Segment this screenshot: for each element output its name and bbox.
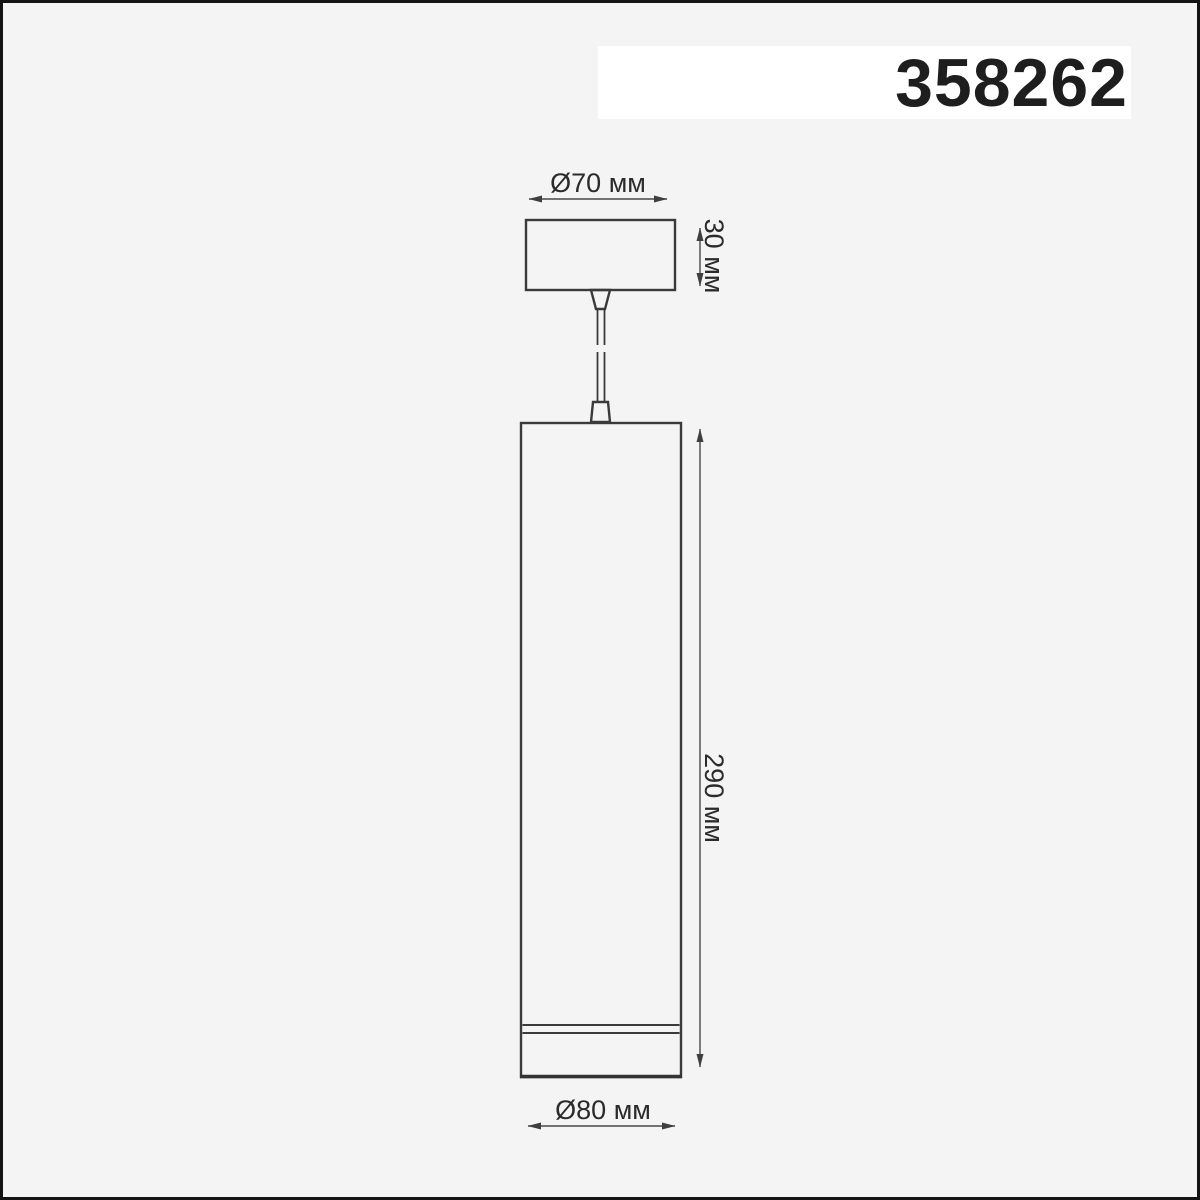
dim-label-canopy-diameter: Ø70 мм	[550, 168, 646, 198]
canopy-outline	[526, 220, 675, 290]
technical-drawing: Ø70 мм 30 мм 290 мм Ø80 мм	[3, 3, 1200, 1200]
dim-label-body-diameter: Ø80 мм	[555, 1095, 651, 1125]
lamp-body-outline	[521, 423, 681, 1077]
suspension-cable	[598, 309, 605, 402]
dim-label-canopy-height: 30 мм	[699, 219, 729, 294]
spec-sheet-canvas: 358262 Ø70 мм 30 мм	[0, 0, 1200, 1200]
cord-grip-upper	[591, 290, 610, 309]
dim-label-body-height: 290 мм	[699, 753, 729, 843]
cord-grip-lower	[591, 402, 610, 422]
